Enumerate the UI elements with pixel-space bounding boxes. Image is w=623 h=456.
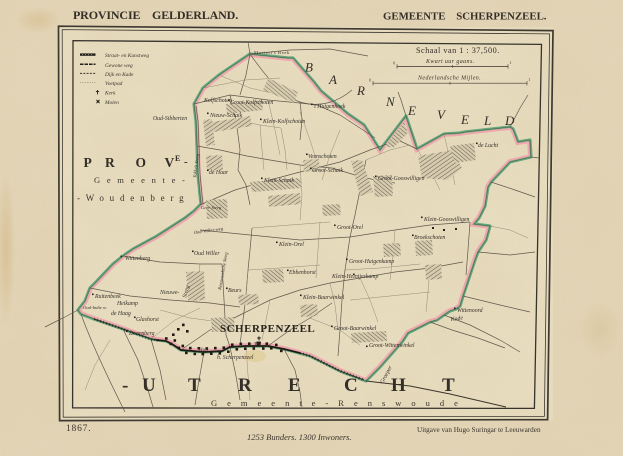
svg-text:Oud Willer: Oud Willer	[194, 251, 220, 257]
svg-text:Geer Steeg: Geer Steeg	[201, 205, 222, 210]
svg-text:Groot-Huigenkamp: Groot-Huigenkamp	[349, 259, 394, 265]
svg-text:Uitgave van Hugo Suringar te L: Uitgave van Hugo Suringar te Leeuwarden	[417, 426, 541, 434]
svg-text:E: E	[175, 154, 180, 163]
svg-text:V: V	[165, 155, 175, 170]
svg-text:Klein-Heintjeskamp: Klein-Heintjeskamp	[331, 274, 378, 280]
svg-text:Groot-Wittenwinkel: Groot-Wittenwinkel	[369, 343, 415, 349]
svg-text:Gemeente-Renswoude: Gemeente-Renswoude	[211, 398, 468, 408]
svg-text:Oud-Indie w.: Oud-Indie w.	[83, 305, 107, 310]
svg-text:Veenschoten: Veenschoten	[308, 154, 337, 160]
svg-text:Kwart uur gaans.: Kwart uur gaans.	[425, 59, 475, 65]
svg-text:Beurs: Beurs	[228, 288, 242, 294]
svg-text:Molen: Molen	[104, 100, 119, 106]
svg-text:h. Scherpenzeel: h. Scherpenzeel	[217, 355, 254, 361]
svg-text:U: U	[142, 375, 156, 396]
svg-text:Kolfschoten: Kolfschoten	[203, 97, 232, 104]
svg-text:E: E	[288, 375, 301, 396]
svg-text:Broekschoten: Broekschoten	[414, 235, 445, 241]
svg-text:Kerk: Kerk	[104, 91, 116, 97]
svg-text:-: -	[184, 156, 188, 168]
svg-text:Doornberg: Doornberg	[128, 331, 155, 337]
svg-text:R: R	[238, 375, 252, 396]
svg-text:-Woudenberg: -Woudenberg	[77, 193, 189, 203]
svg-text:Voetpad: Voetpad	[105, 81, 123, 87]
svg-text:Groot-Schaik: Groot-Schaik	[312, 168, 343, 174]
svg-text:R: R	[105, 155, 115, 170]
svg-text:Huis: Huis	[198, 348, 208, 353]
svg-text:Wittenberg: Wittenberg	[125, 256, 150, 262]
svg-text:GEMEENTE SCHERPENZEEL.: GEMEENTE SCHERPENZEEL.	[383, 11, 547, 23]
svg-text:1253 Bunders. 1300 Inwoners.: 1253 Bunders. 1300 Inwoners.	[247, 432, 352, 442]
svg-text:B: B	[305, 60, 313, 75]
svg-text:0: 0	[393, 61, 395, 66]
svg-text:1867.: 1867.	[66, 424, 91, 434]
svg-text:N: N	[385, 94, 396, 109]
svg-text:H: H	[391, 375, 406, 396]
svg-text:Groot-Kolfschoten: Groot-Kolfschoten	[230, 99, 273, 106]
svg-text:Groot-Orel: Groot-Orel	[337, 225, 363, 231]
svg-text:R: R	[356, 83, 365, 98]
svg-text:Gewone weg: Gewone weg	[105, 63, 133, 69]
svg-text:Oud-Sibberten: Oud-Sibberten	[153, 116, 187, 122]
svg-text:1: 1	[529, 77, 531, 82]
svg-text:Klein-Kolfschoten: Klein-Kolfschoten	[262, 118, 305, 125]
svg-text:SCHERPENZEEL: SCHERPENZEEL	[220, 323, 315, 335]
svg-text:T: T	[442, 375, 455, 396]
svg-text:de Haar: de Haar	[209, 170, 229, 176]
svg-text:'t Huigenhoek: 't Huigenhoek	[313, 104, 346, 110]
svg-text:Dijk en Kade: Dijk en Kade	[104, 72, 134, 78]
svg-text:0: 0	[369, 78, 371, 83]
svg-text:Wittenoord: Wittenoord	[457, 308, 483, 314]
svg-text:Glashorst: Glashorst	[136, 317, 159, 323]
svg-text:P: P	[84, 155, 92, 170]
svg-text:Gemeente-: Gemeente-	[94, 175, 192, 185]
svg-text:PROVINCIE GELDERLAND.: PROVINCIE GELDERLAND.	[73, 8, 238, 22]
svg-text:Klein-Baarwinkel: Klein-Baarwinkel	[302, 295, 345, 301]
svg-text:C: C	[344, 375, 358, 396]
svg-text:1: 1	[510, 60, 512, 65]
svg-text:A: A	[328, 72, 337, 87]
svg-text:D: D	[504, 113, 515, 128]
svg-text:Groot-Baarwinkel: Groot-Baarwinkel	[334, 326, 377, 332]
svg-text:Nieuw-Schaik: Nieuw-Schaik	[209, 113, 243, 119]
svg-text:Nederlandsche Mijlen.: Nederlandsche Mijlen.	[417, 75, 481, 81]
svg-text:Straat- en Kunstweg: Straat- en Kunstweg	[105, 53, 149, 59]
svg-text:E: E	[407, 103, 416, 118]
svg-text:Ruitenbeek: Ruitenbeek	[94, 294, 121, 300]
svg-text:Schaal van 1 : 37,500.: Schaal van 1 : 37,500.	[416, 46, 500, 55]
svg-text:T: T	[188, 375, 201, 396]
svg-text:Tol.: Tol.	[254, 342, 263, 348]
svg-text:E: E	[460, 112, 469, 127]
svg-text:Klein-Gooswilligen: Klein-Gooswilligen	[423, 217, 470, 223]
svg-text:de Haag: de Haag	[111, 311, 131, 317]
svg-text:Mostert's Beek: Mostert's Beek	[254, 50, 290, 55]
svg-text:Klein-Orel: Klein-Orel	[278, 242, 304, 248]
svg-text:L: L	[483, 113, 491, 128]
svg-text:O: O	[136, 155, 147, 170]
svg-text:-: -	[122, 375, 128, 396]
svg-text:Groot-Gooswilligen: Groot-Gooswilligen	[378, 176, 425, 182]
svg-text:Nieuwe-: Nieuwe-	[159, 290, 179, 296]
svg-text:Heikamp: Heikamp	[116, 301, 138, 307]
svg-text:Klein-Schaik: Klein-Schaik	[263, 178, 294, 184]
svg-text:Ebbenhorst: Ebbenhorst	[288, 270, 316, 276]
svg-text:de Lucht: de Lucht	[478, 143, 499, 149]
